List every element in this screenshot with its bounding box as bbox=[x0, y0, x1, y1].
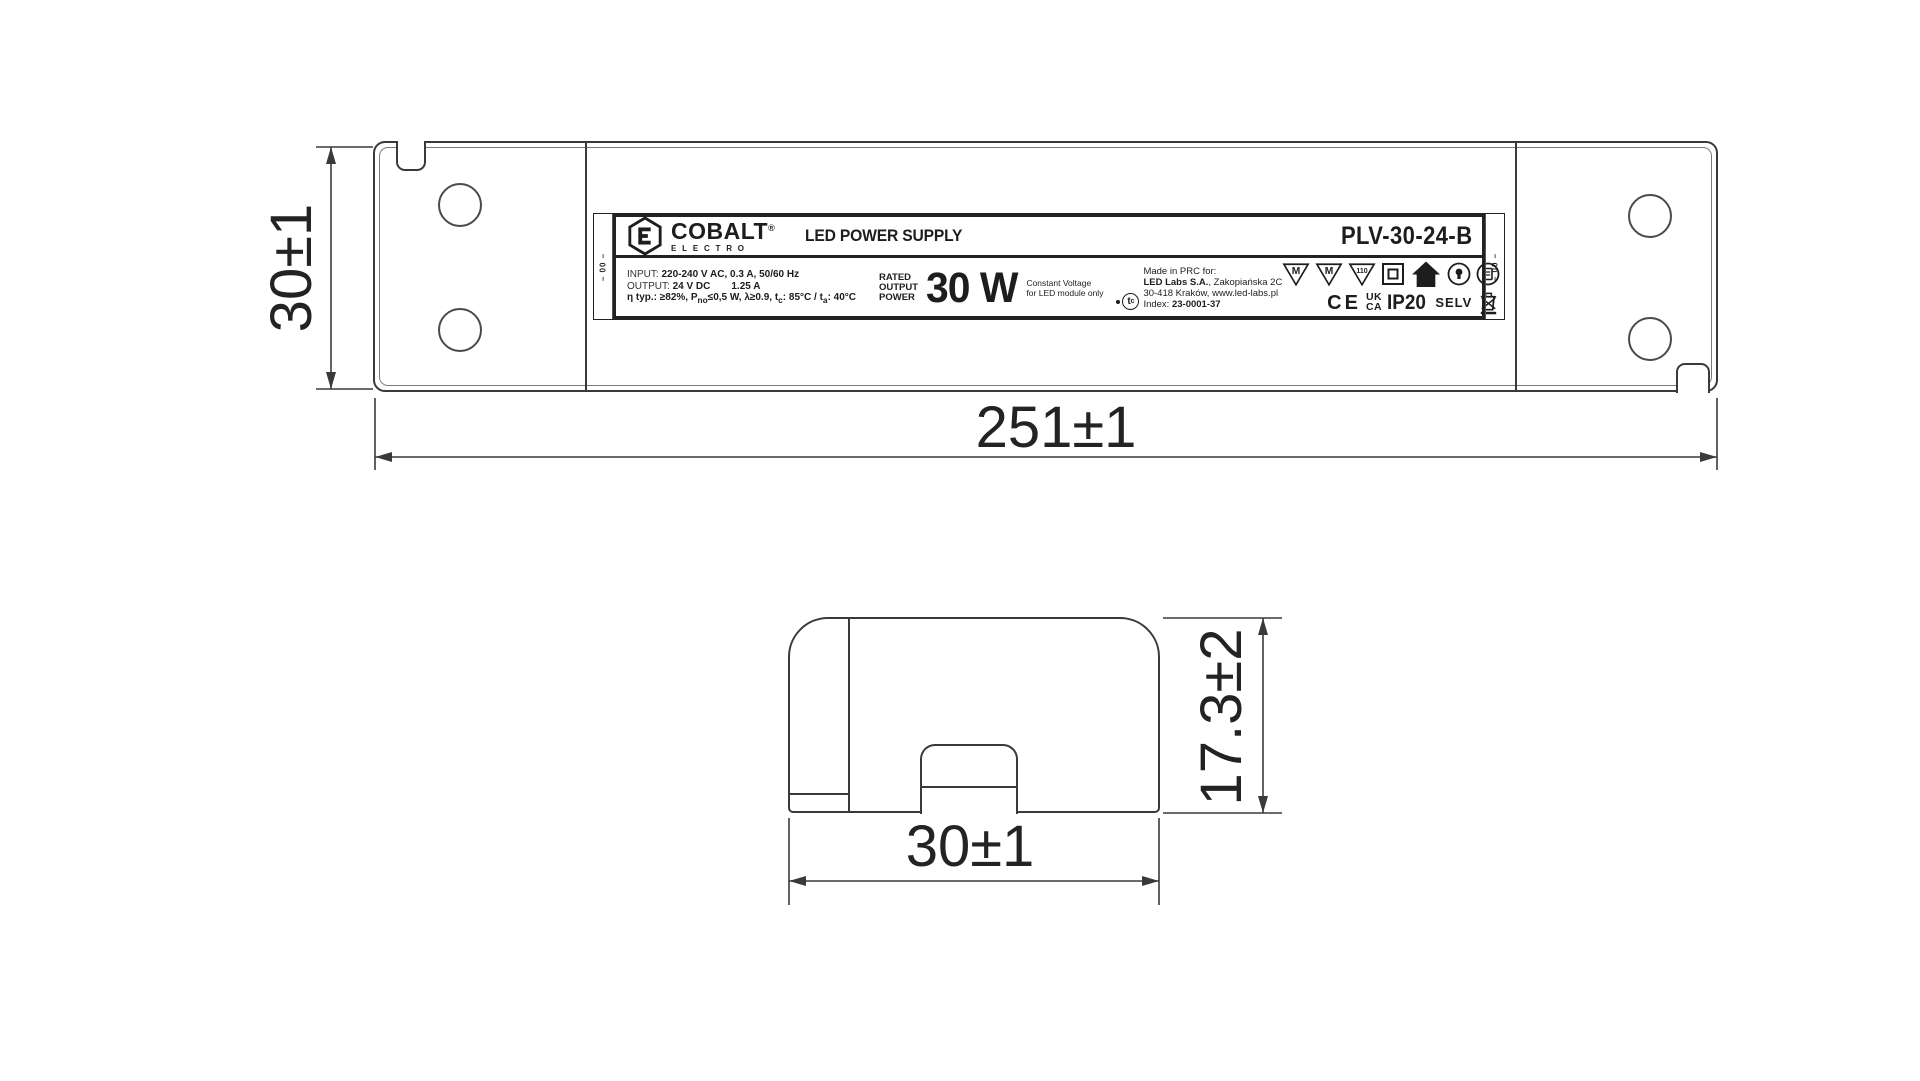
dimension-end-view-height: 17.3±2 bbox=[1193, 607, 1251, 827]
screw-hole bbox=[438, 183, 482, 227]
label-header-row: COBALT® ELECTRO LED POWER SUPPLY PLV-30-… bbox=[616, 217, 1482, 258]
manufacturer-block: tc Made in PRC for: LED Labs S.A., Zakop… bbox=[1116, 266, 1282, 310]
electrical-specs: INPUT: 220-240 V AC, 0.3 A, 50/60 Hz OUT… bbox=[627, 269, 877, 307]
icons-row-1: M M 110 bbox=[1282, 260, 1500, 288]
company-line: LED Labs S.A., Zakopiańska 2C bbox=[1143, 277, 1282, 288]
rated-output-power-caption: RATED OUTPUT POWER bbox=[879, 273, 918, 303]
cable-clamp-line bbox=[922, 786, 1016, 788]
brand-name: COBALT® bbox=[671, 220, 775, 243]
luminaire-bulb-icon bbox=[1447, 262, 1471, 286]
label-right-code-strip: – 00 – bbox=[1485, 214, 1504, 319]
model-number: PLV-30-24-B bbox=[1341, 222, 1473, 251]
ce-mark: CE bbox=[1327, 293, 1361, 313]
brand-logo: COBALT® ELECTRO bbox=[627, 216, 775, 256]
mounting-slot-bottom-right bbox=[1676, 363, 1710, 393]
screw-hole bbox=[1628, 317, 1672, 361]
svg-text:M: M bbox=[1325, 266, 1334, 277]
constant-voltage-note: Constant Voltage for LED module only bbox=[1026, 278, 1106, 298]
input-spec: INPUT: 220-240 V AC, 0.3 A, 50/60 Hz bbox=[627, 269, 877, 281]
cable-clamp-outline bbox=[920, 744, 1018, 814]
certification-icons: M M 110 bbox=[1282, 260, 1500, 316]
left-case-seam bbox=[585, 143, 587, 390]
ip20-rating: IP20 bbox=[1387, 292, 1426, 313]
product-type: LED POWER SUPPLY bbox=[805, 226, 962, 246]
ukca-mark: UKCA bbox=[1366, 293, 1382, 312]
address-line: 30-418 Kraków, www.led-labs.pl bbox=[1143, 288, 1282, 299]
made-in-line: Made in PRC for: bbox=[1143, 266, 1282, 277]
index-line: Index: 23-0001-37 bbox=[1143, 299, 1282, 310]
end-view-seam bbox=[848, 619, 850, 811]
dimension-top-view-length: 251±1 bbox=[956, 399, 1156, 457]
dimension-end-view-width: 30±1 bbox=[870, 818, 1070, 876]
class-ii-icon bbox=[1381, 262, 1405, 286]
icons-row-2: CE UKCA IP20 SELV bbox=[1282, 289, 1500, 316]
flammable-surface-m-icon: M bbox=[1282, 262, 1310, 287]
product-label: – 00 – COBALT® ELECTRO bbox=[593, 213, 1505, 320]
brand-wordmark: COBALT® ELECTRO bbox=[671, 220, 775, 253]
dimension-top-view-height: 30±1 bbox=[263, 168, 321, 368]
screw-hole bbox=[1628, 194, 1672, 238]
batch-code: – 00 – bbox=[1491, 252, 1500, 280]
end-view-outline bbox=[788, 617, 1160, 813]
rated-power-value: 30 W bbox=[926, 264, 1018, 313]
batch-code: – 00 – bbox=[599, 252, 608, 280]
svg-text:110: 110 bbox=[1357, 268, 1368, 275]
label-left-code-strip: – 00 – bbox=[594, 214, 613, 319]
indoor-use-house-icon bbox=[1410, 260, 1442, 288]
technical-drawing-page: – 00 – COBALT® ELECTRO bbox=[0, 0, 1920, 1081]
right-case-seam bbox=[1515, 143, 1517, 390]
efficiency-spec: η typ.: ≥82%, Pno≤0,5 W, λ≥0.9, tc: 85°C… bbox=[627, 292, 877, 307]
temperature-110-triangle-icon: 110 bbox=[1348, 262, 1376, 287]
label-content: COBALT® ELECTRO LED POWER SUPPLY PLV-30-… bbox=[613, 214, 1485, 319]
selv-mark: SELV bbox=[1435, 296, 1472, 309]
screw-hole bbox=[438, 308, 482, 352]
tc-circle-icon: tc bbox=[1122, 293, 1139, 310]
brand-subname: ELECTRO bbox=[671, 245, 775, 253]
tc-symbol: tc bbox=[1116, 293, 1139, 310]
flammable-surface-m-icon: M bbox=[1315, 262, 1343, 287]
bullet-icon bbox=[1116, 300, 1120, 304]
output-spec: OUTPUT: 24 V DC1.25 A bbox=[627, 281, 877, 293]
mounting-slot-top-left bbox=[396, 141, 426, 171]
label-spec-row: INPUT: 220-240 V AC, 0.3 A, 50/60 Hz OUT… bbox=[616, 258, 1482, 319]
registered-mark: ® bbox=[768, 223, 775, 233]
end-view-base-line bbox=[790, 793, 848, 795]
svg-text:M: M bbox=[1292, 266, 1301, 277]
cobalt-hexagon-icon bbox=[627, 216, 663, 256]
